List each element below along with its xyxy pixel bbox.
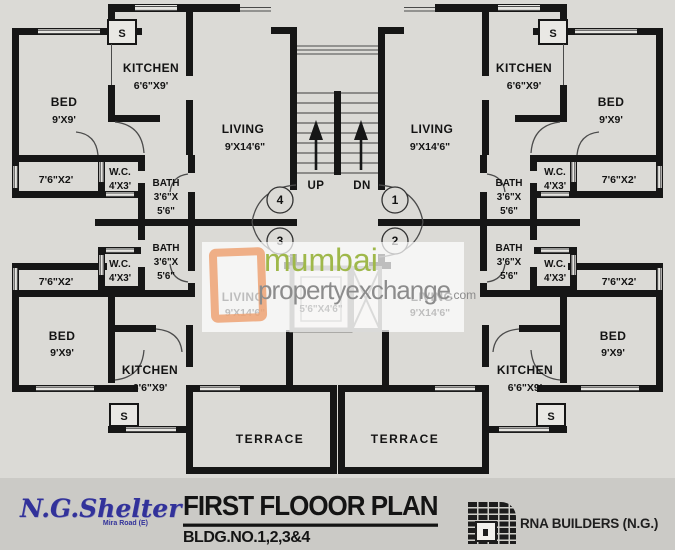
flat-1-number: 1 xyxy=(392,193,399,207)
bath-size-2: 5'6" xyxy=(500,206,518,217)
shaft-label: S xyxy=(549,28,556,40)
bed-label: BED xyxy=(598,95,625,109)
plan-title-block: FIRST FLOOOR PLAN BLDG.NO.1,2,3&4 xyxy=(183,489,438,547)
rna-logo-door xyxy=(483,529,488,536)
wc-label: W.C. xyxy=(109,259,131,270)
balcony-size: 7'6"X2' xyxy=(39,174,74,186)
watermark-word-propertyexchange: propertyexchange.com xyxy=(258,275,476,306)
shaft-label: S xyxy=(547,411,554,423)
wc-label: W.C. xyxy=(544,167,566,178)
shaft-label: S xyxy=(118,28,125,40)
wc-size: 4'X3' xyxy=(109,273,131,284)
bath-size-1: 3'6"X xyxy=(497,192,522,203)
living-size: 9'X14'6" xyxy=(225,141,265,153)
kitchen-size: 6'6"X9' xyxy=(133,382,168,394)
bath-label: BATH xyxy=(152,178,179,189)
balcony-size: 7'6"X2' xyxy=(602,276,637,288)
kitchen-size: 6'6"X9' xyxy=(508,382,543,394)
kitchen-label: KITCHEN xyxy=(496,61,552,75)
bath-label: BATH xyxy=(495,178,522,189)
wc-size: 4'X3' xyxy=(544,181,566,192)
rna-logo-window xyxy=(475,521,497,542)
terrace-label: TERRACE xyxy=(236,432,305,446)
balcony-size: 7'6"X2' xyxy=(602,174,637,186)
stairs-up-label: UP xyxy=(308,180,325,192)
kitchen-size: 6'6"X9' xyxy=(134,80,169,92)
bed-size: 9'X9' xyxy=(599,114,623,126)
bed-size: 9'X9' xyxy=(601,347,625,359)
bath-size-1: 3'6"X xyxy=(497,257,522,268)
wc-label: W.C. xyxy=(544,259,566,270)
floor-plan-sheet: 4 3 1 2 S KITCHEN 6'6"X9' BED 9'X9' LIVI… xyxy=(0,0,675,550)
wc-size: 4'X3' xyxy=(544,273,566,284)
developer-logo: N.G.Shelter Mira Road (E) xyxy=(20,494,170,527)
kitchen-label: KITCHEN xyxy=(497,363,553,377)
shaft-label: S xyxy=(120,411,127,423)
bath-size-2: 5'6" xyxy=(500,271,518,282)
bath-size-1: 3'6"X xyxy=(154,192,179,203)
developer-name: N.G.Shelter xyxy=(20,494,170,523)
rna-builders-brick-icon xyxy=(468,502,516,544)
bath-label: BATH xyxy=(152,243,179,254)
bed-label: BED xyxy=(51,95,78,109)
bed-label: BED xyxy=(49,329,76,343)
bath-size-2: 5'6" xyxy=(157,206,175,217)
living-label: LIVING xyxy=(222,122,264,136)
wc-label: W.C. xyxy=(109,167,131,178)
kitchen-size: 6'6"X9' xyxy=(507,80,542,92)
kitchen-label: KITCHEN xyxy=(122,363,178,377)
bath-size-2: 5'6" xyxy=(157,271,175,282)
watermark: mumbai propertyexchange.com xyxy=(202,242,464,332)
watermark-text: propertyexchange xyxy=(258,275,450,305)
bath-size-1: 3'6"X xyxy=(154,257,179,268)
stairs-down-label: DN xyxy=(353,180,371,192)
living-label: LIVING xyxy=(411,122,453,136)
building-number: BLDG.NO.1,2,3&4 xyxy=(183,529,438,547)
title-block-bar: N.G.Shelter Mira Road (E) FIRST FLOOOR P… xyxy=(0,478,675,550)
bed-label: BED xyxy=(600,329,627,343)
bed-size: 9'X9' xyxy=(52,114,76,126)
plan-title: FIRST FLOOOR PLAN xyxy=(183,489,438,527)
watermark-word-mumbai: mumbai xyxy=(264,242,378,279)
watermark-com-suffix: .com xyxy=(450,288,476,302)
balcony-size: 7'6"X2' xyxy=(39,276,74,288)
builder-name: RNA BUILDERS (N.G.) xyxy=(520,516,658,531)
kitchen-label: KITCHEN xyxy=(123,61,179,75)
bed-size: 9'X9' xyxy=(50,347,74,359)
wc-size: 4'X3' xyxy=(109,181,131,192)
terrace-label: TERRACE xyxy=(371,432,440,446)
flat-4-number: 4 xyxy=(277,193,284,207)
plan-paper xyxy=(0,0,675,478)
bath-label: BATH xyxy=(495,243,522,254)
living-size: 9'X14'6" xyxy=(410,141,450,153)
